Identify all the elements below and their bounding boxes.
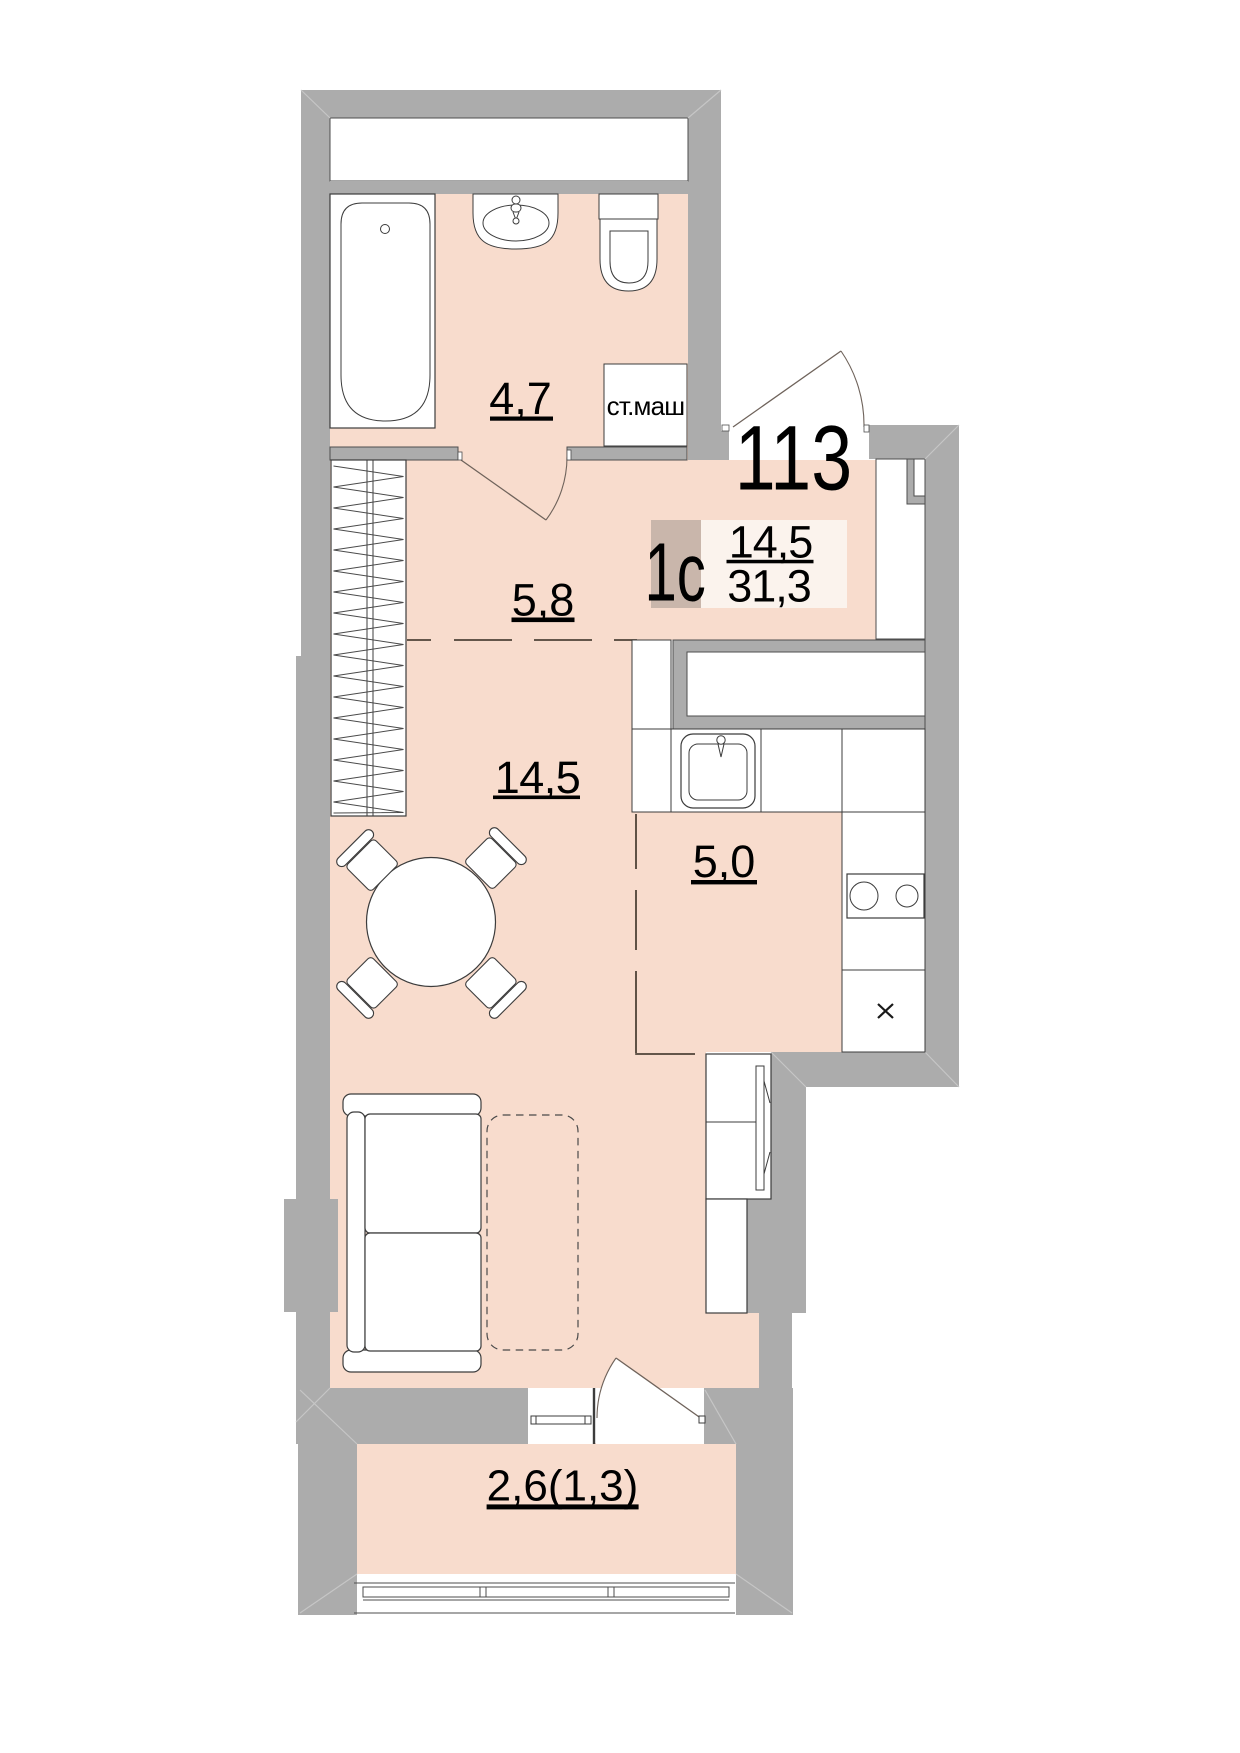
svg-text:14,5: 14,5 <box>495 752 581 803</box>
svg-text:ст.маш: ст.маш <box>607 391 685 421</box>
svg-text:2,6(1,3): 2,6(1,3) <box>487 1462 639 1511</box>
svg-text:113: 113 <box>735 407 852 510</box>
svg-text:31,3: 31,3 <box>727 561 811 612</box>
svg-text:4,7: 4,7 <box>489 373 552 424</box>
svg-text:5,0: 5,0 <box>693 836 756 887</box>
svg-text:1с: 1с <box>645 526 706 619</box>
